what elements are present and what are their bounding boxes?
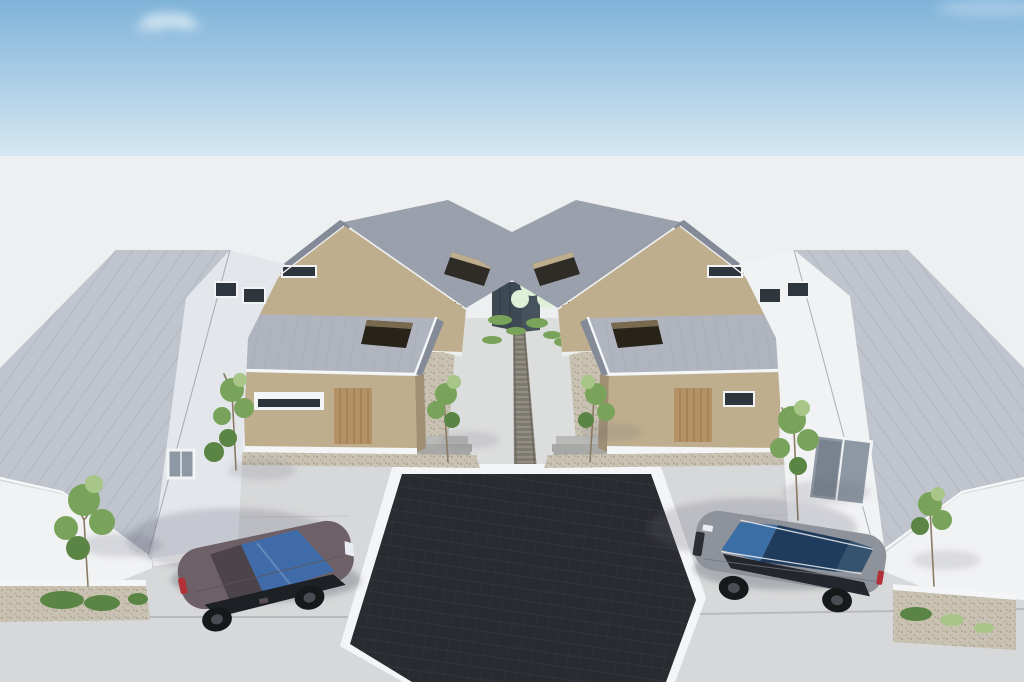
foliage-blob: [219, 429, 237, 447]
rendering-canvas: [0, 0, 1024, 682]
foliage-blob: [511, 290, 529, 308]
grass-tuft: [974, 623, 994, 633]
shrub: [488, 315, 512, 325]
slit-window: [708, 266, 742, 277]
shrub: [482, 336, 502, 344]
foliage-blob: [85, 475, 103, 493]
tree-shadow: [782, 480, 870, 504]
foliage-blob: [447, 375, 461, 389]
sky: [0, 0, 1024, 157]
shrub: [526, 318, 548, 328]
foliage-blob: [54, 516, 78, 540]
tree-shadow: [912, 550, 980, 570]
bush: [40, 591, 84, 609]
tree-shadow: [440, 431, 500, 449]
foliage-blob: [204, 442, 224, 462]
foliage-blob: [427, 401, 445, 419]
foliage-blob: [797, 429, 819, 451]
foliage-blob: [213, 407, 231, 425]
bush: [900, 607, 932, 621]
foliage-blob: [794, 400, 810, 416]
gable-window: [243, 288, 265, 303]
foliage-blob: [931, 487, 945, 501]
foliage-blob: [581, 375, 595, 389]
shrub: [543, 331, 561, 339]
tree-shadow: [228, 460, 296, 480]
foliage-blob: [932, 510, 952, 530]
foliage-blob: [578, 412, 594, 428]
foliage-blob: [66, 536, 90, 560]
shrub: [506, 327, 526, 335]
gable-window: [215, 282, 237, 297]
central-plaza: [340, 464, 706, 682]
foliage-blob: [89, 509, 115, 535]
foliage-blob: [444, 412, 460, 428]
plaza-texture: [350, 474, 696, 682]
window-band-glass: [258, 399, 320, 407]
foliage-blob: [597, 403, 615, 421]
foliage-blob: [911, 517, 929, 535]
gable-window: [759, 288, 781, 303]
curb: [0, 580, 146, 586]
slit-window: [282, 266, 316, 277]
foliage-blob: [234, 398, 254, 418]
cloud: [174, 22, 202, 30]
gable-window: [787, 282, 809, 297]
foliage-blob: [789, 457, 807, 475]
slit-window: [724, 392, 754, 406]
cloud: [134, 22, 166, 32]
grass-tuft: [940, 614, 964, 626]
front-wall: [243, 372, 417, 452]
foliage-blob: [770, 438, 790, 458]
foliage-blob: [233, 373, 247, 387]
bush: [128, 593, 148, 605]
bush: [84, 595, 120, 611]
